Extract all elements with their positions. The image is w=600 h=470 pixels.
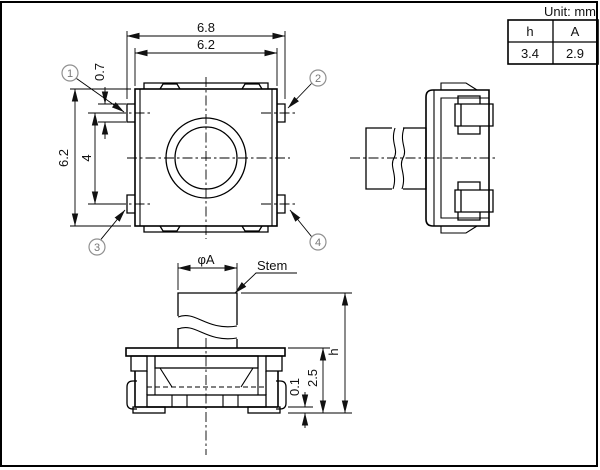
front-view-extension-lines: [178, 263, 352, 413]
dim-label-body-height: 6.2: [56, 149, 71, 167]
front-view-inner-slants: [155, 368, 258, 395]
dim-label-overall-width: 6.8: [197, 20, 215, 35]
callout-3-label: 3: [94, 242, 100, 254]
front-view-cover-plate: [155, 356, 258, 368]
table-header-a: A: [571, 24, 580, 39]
front-view-flange: [126, 348, 285, 356]
callout-4-label: 4: [315, 237, 321, 249]
dim-label-standoff: 0.1: [287, 378, 302, 396]
front-view-base-dividers: [172, 395, 238, 407]
front-view-right-pad: [248, 407, 280, 413]
dim-label-body-height: 2.5: [305, 369, 320, 387]
table-header-h: h: [526, 24, 533, 39]
stem-leader: [235, 273, 297, 293]
dim-label-terminal-height: 0.7: [92, 63, 107, 81]
front-view-shell: [135, 371, 278, 407]
callout-2-leader: [288, 84, 312, 109]
callout-1-label: 1: [67, 68, 73, 80]
unit-table: Unit: mm h A 3.4 2.9: [508, 4, 598, 64]
callout-1-leader: [77, 79, 125, 113]
dim-label-terminal-pitch: 4: [79, 154, 94, 161]
callout-4-leader: [290, 210, 312, 237]
front-view-base-strip: [147, 395, 266, 407]
side-view: [350, 83, 498, 233]
table-value-a: 2.9: [566, 46, 584, 61]
top-view-centerlines: [116, 77, 296, 239]
dim-label-stem-diameter: φA: [197, 252, 214, 267]
front-view-stem-break-lines: [178, 316, 237, 339]
side-view-stem-break-lines: [392, 128, 404, 189]
front-view-left-cap: [131, 356, 147, 371]
top-view: 6.8 6.2 6.2 4 0.7 1 2 3 4: [56, 20, 326, 255]
dim-label-total-height: h: [326, 348, 341, 355]
front-view: φA h 2.5 0.1 Stem: [126, 252, 352, 455]
side-view-stem: [366, 128, 426, 189]
top-view-extension-lines: [70, 31, 285, 226]
callout-3-leader: [101, 210, 125, 239]
table-value-h: 3.4: [521, 46, 539, 61]
dim-label-body-width: 6.2: [197, 37, 215, 52]
drawing-page: Unit: mm h A 3.4 2.9 6.8 6.2 6.2 4: [0, 0, 600, 470]
callout-2-label: 2: [315, 73, 321, 85]
front-view-stem: [178, 293, 237, 348]
unit-label: Unit: mm: [544, 4, 596, 19]
drawing-canvas: Unit: mm h A 3.4 2.9 6.8 6.2 6.2 4: [0, 0, 600, 470]
front-view-right-cap: [266, 356, 282, 371]
front-view-inner-walls: [147, 371, 266, 395]
stem-label: Stem: [257, 258, 287, 273]
front-view-left-pad: [133, 407, 165, 413]
